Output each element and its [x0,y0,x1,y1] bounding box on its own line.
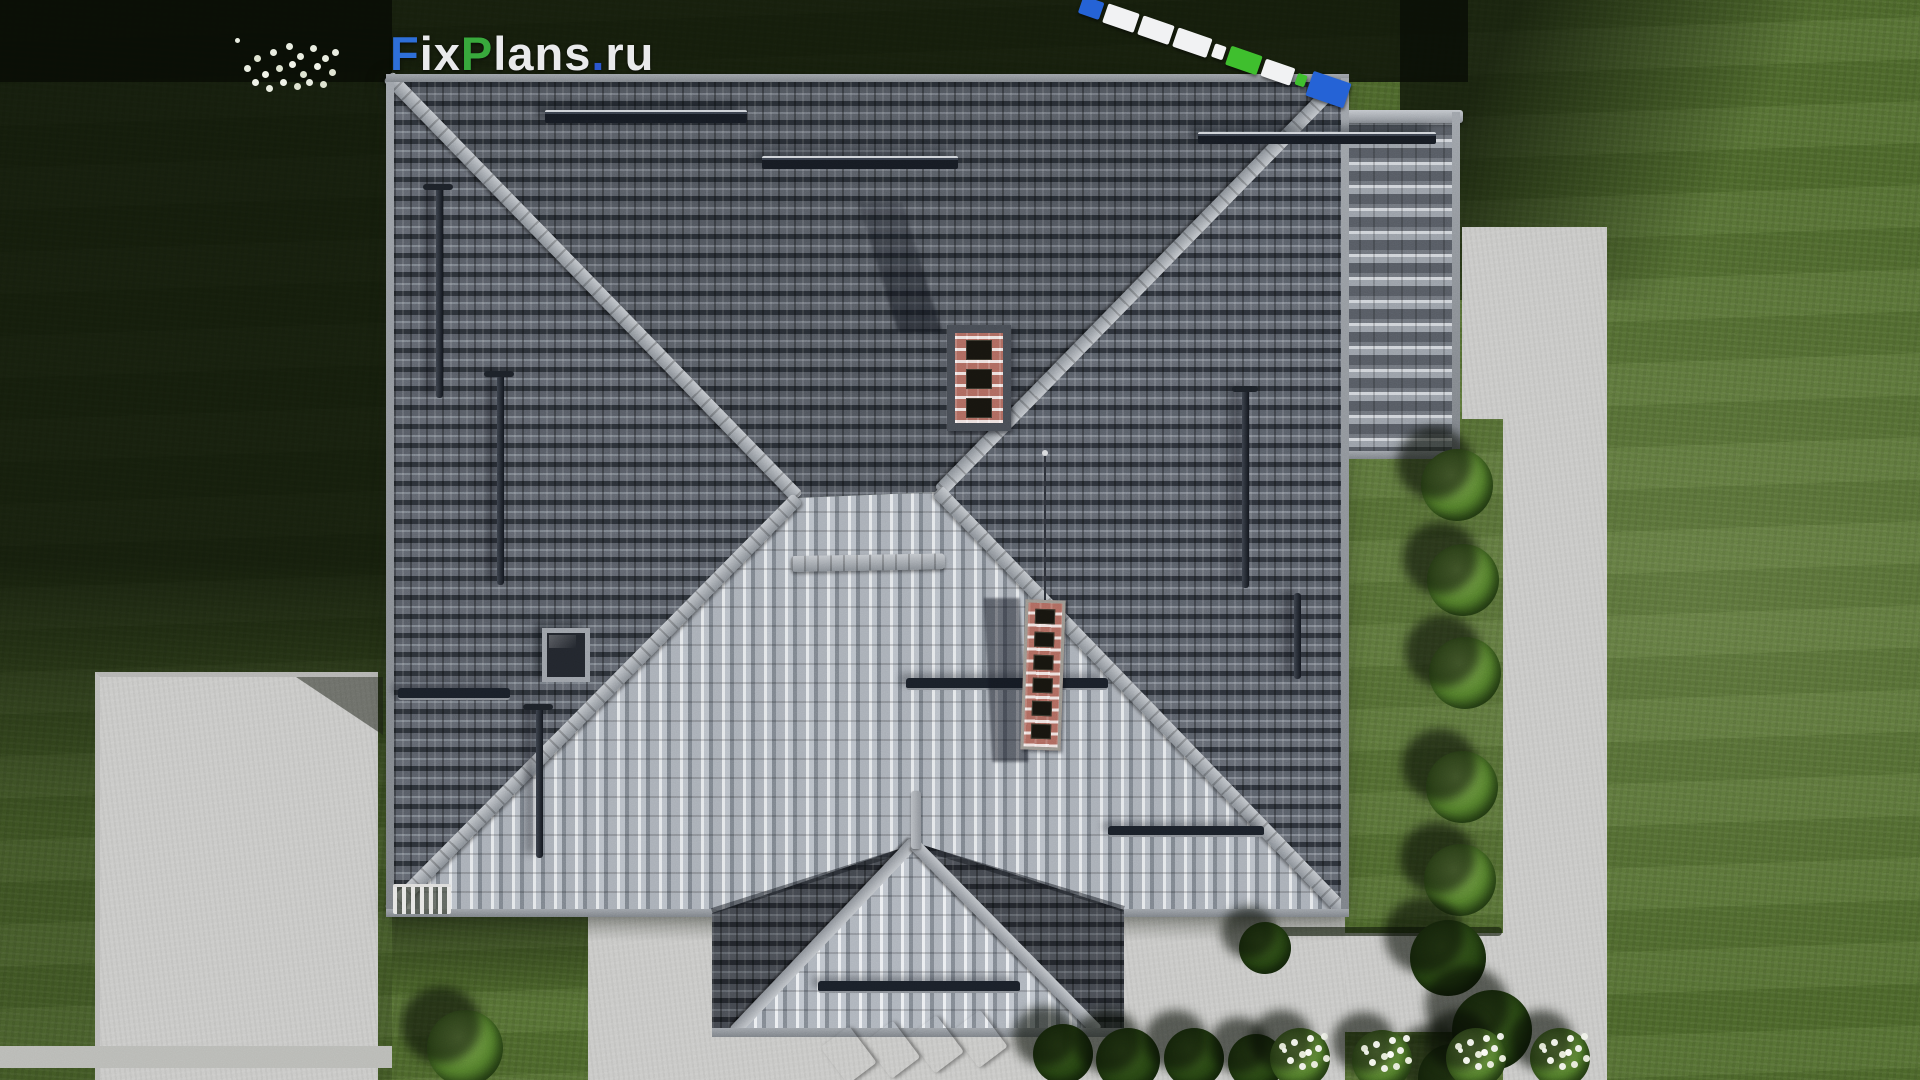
marker-segment [1294,73,1307,88]
marker-segment [1211,43,1227,60]
flower-cluster [235,38,350,108]
vent-pipe-cap [484,371,514,377]
porch-railing [393,884,451,914]
porch-ridge [911,791,921,849]
vent-pipe [497,373,504,585]
flue-opening [1031,724,1052,740]
render-canvas: FixPlans.ru [0,0,1920,1080]
main-ridge [791,553,945,572]
logo-letter: lans [493,27,591,80]
snow-guard-bar [762,156,958,169]
vent-pipe-cap [523,704,553,710]
vent-pipe [536,706,543,858]
logo-letter: P [461,27,493,80]
logo-letter: ru [605,27,654,80]
flue-opening [966,340,992,360]
car [864,1020,920,1078]
shrub [1427,544,1499,616]
dark-shrub [1239,922,1291,974]
vent-pipe [1242,388,1249,588]
logo-dot: . [591,27,605,80]
roof-shadow-on-patio [100,677,383,1080]
eave-left [386,74,394,917]
eave-right [1341,78,1349,917]
porch-snow-guard-bar [818,981,1020,993]
flue-opening [1034,632,1055,648]
garage-roof-wing [1345,116,1457,457]
walkway-bottom-left [0,1046,392,1068]
flue-opening [1033,655,1054,671]
snow-guard-bar [1108,826,1264,837]
flue-opening [1035,609,1056,625]
flue-opening [966,398,992,418]
flower-bush [1530,1028,1590,1080]
flower-bush [1270,1028,1330,1080]
garage-ridge [1345,110,1463,123]
flower-bush [1446,1028,1506,1080]
main-roof [386,74,1349,917]
chimney-six-flue [1020,599,1065,750]
antenna-mast [1044,453,1046,601]
shrub [427,1010,503,1080]
snow-guard-bar [398,688,510,700]
roof-hatch [542,628,590,682]
marker-segment [1078,0,1105,20]
shrub [1426,751,1498,823]
logo-letter: F [390,27,420,80]
snow-guard-bar [545,110,747,123]
flue-opening [966,369,992,389]
vent-pipe [1294,593,1301,679]
patio-bottom-left [95,672,378,1080]
eave-shadow-bottom [392,913,592,1003]
fixplans-watermark-logo: FixPlans.ru [390,26,654,81]
vent-pipe [436,186,443,398]
vent-pipe-cap [423,184,453,190]
chimney-three-flue [947,325,1011,431]
snow-guard-bar [1198,132,1436,144]
porch-roof [712,838,1124,1034]
vent-pipe-cap [1232,386,1258,392]
path-right-upper [1462,227,1607,419]
path-right [1503,417,1607,1080]
garage-eave-right [1452,112,1460,459]
logo-letter: ix [420,27,461,80]
car [908,1015,964,1073]
flue-opening [1032,678,1053,694]
shrub [1429,637,1501,709]
marker-segment [1260,59,1295,86]
shrub [1421,449,1493,521]
flue-opening [1032,701,1053,717]
